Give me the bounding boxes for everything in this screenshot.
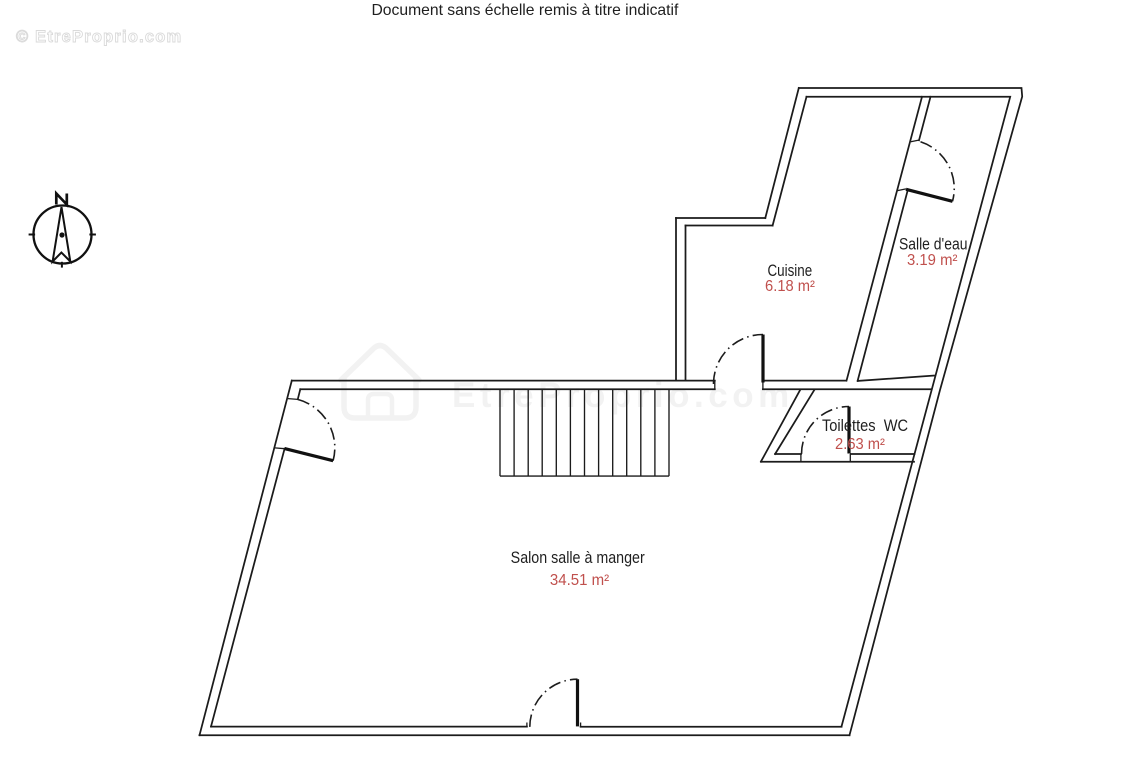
svg-text:Salon salle à manger: Salon salle à manger — [511, 549, 645, 567]
svg-text:2.63 m²: 2.63 m² — [835, 436, 885, 453]
svg-text:© EtreProprio.com: © EtreProprio.com — [16, 28, 182, 46]
svg-text:6.18 m²: 6.18 m² — [765, 278, 815, 295]
svg-text:Document sans échelle remis à: Document sans échelle remis à titre indi… — [371, 2, 679, 19]
svg-text:3.19 m²: 3.19 m² — [907, 252, 957, 269]
svg-text:Toilettes WC: Toilettes WC — [822, 417, 908, 435]
svg-text:EtreProprio.com: EtreProprio.com — [452, 376, 794, 415]
svg-text:34.51 m²: 34.51 m² — [550, 572, 609, 589]
